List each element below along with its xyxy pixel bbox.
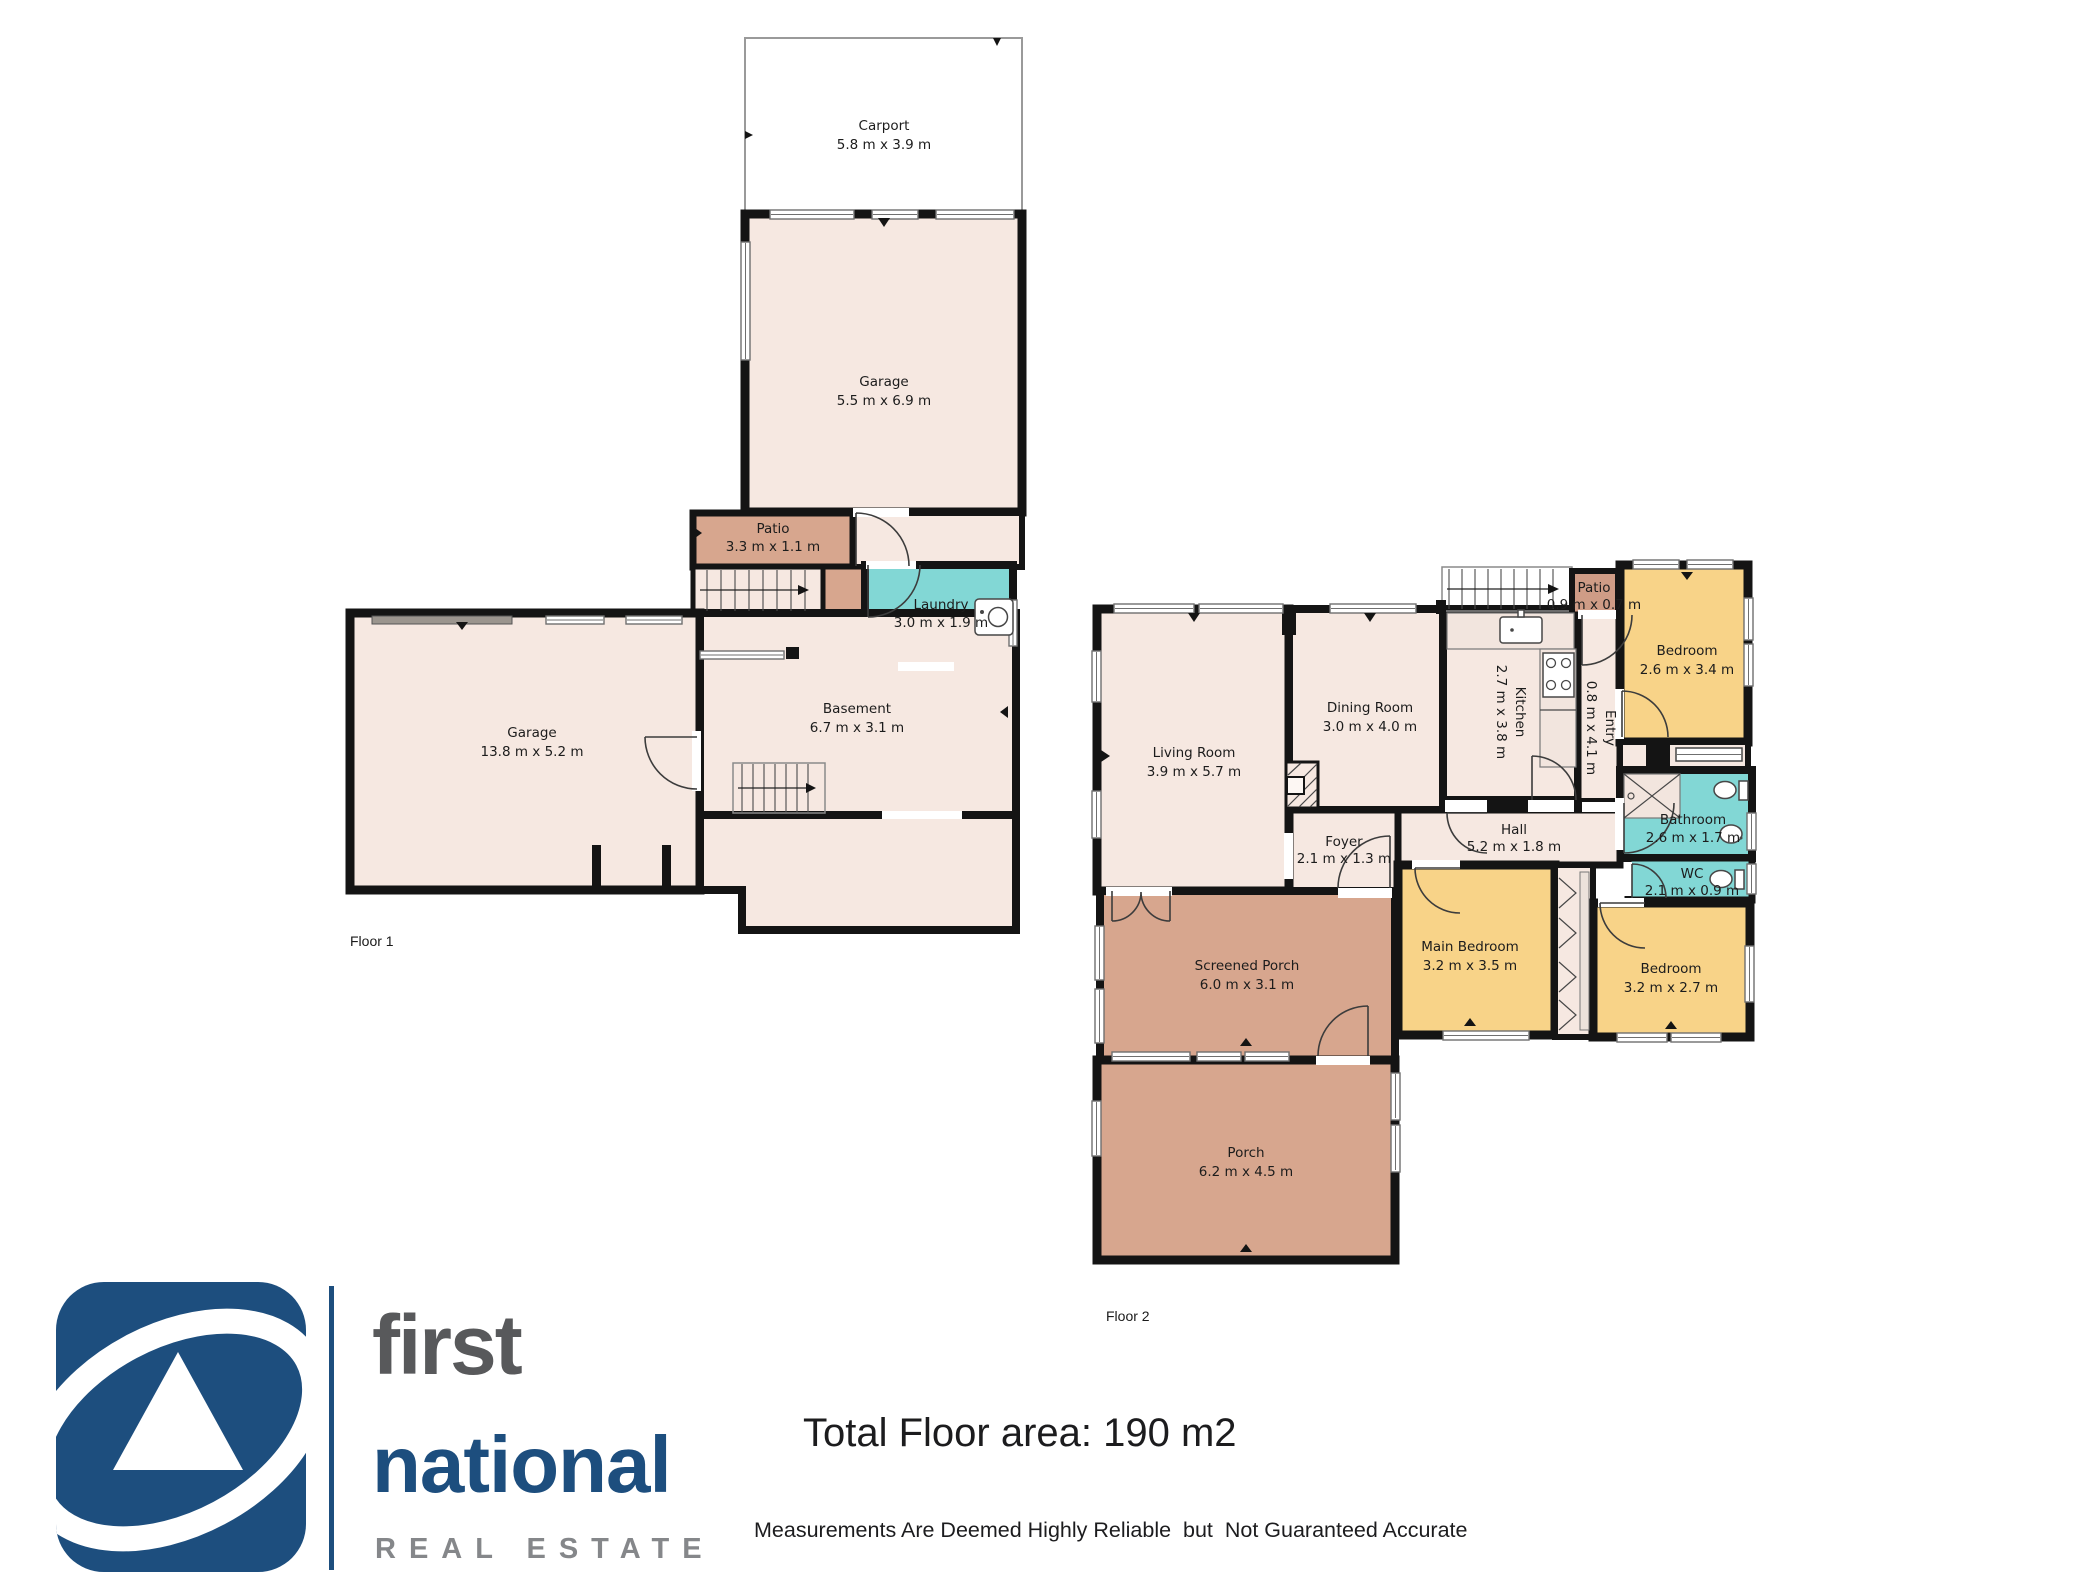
garage-door-strip [372,616,512,624]
room-basement-extension [700,815,1016,930]
logo-word-realestate: REAL ESTATE [375,1533,715,1565]
label-living-dims: 3.9 m x 5.7 m [1147,764,1241,780]
label-bedroom2-name: Bedroom [1640,961,1701,977]
label-patio-f2-name: Patio [1577,580,1610,596]
label-basement-name: Basement [823,701,891,717]
label-hall-name: Hall [1501,822,1527,838]
label-bathroom-dims: 2.6 m x 1.7 m [1646,830,1740,846]
floor2-plan: Living Room 3.9 m x 5.7 m Dining Room 3.… [1092,560,1756,1324]
label-garage-upper-dims: 5.5 m x 6.9 m [837,393,931,409]
label-foyer-name: Foyer [1325,834,1363,850]
label-bedroom1-dims: 2.6 m x 3.4 m [1640,662,1734,678]
label-laundry-dims: 3.0 m x 1.9 m [894,615,988,631]
label-living-name: Living Room [1153,745,1236,761]
brand-logo: first national REAL ESTATE [0,1277,715,1575]
label-floor2: Floor 2 [1106,1308,1150,1324]
room-garage-upper [745,214,1022,512]
label-foyer-dims: 2.1 m x 1.3 m [1297,851,1391,867]
label-patio-f1-name: Patio [756,521,789,537]
label-wc-name: WC [1681,866,1704,882]
stairs-f1-landing [823,567,865,613]
floorplan-canvas: Carport 5.8 m x 3.9 m Garage 5.5 m x 6.9… [0,0,2100,1575]
label-dining-dims: 3.0 m x 4.0 m [1323,719,1417,735]
label-bedroom1-name: Bedroom [1656,643,1717,659]
label-wc-dims: 2.1 m x 0.9 m [1645,883,1739,899]
label-floor1: Floor 1 [350,933,394,949]
disclaimer-text: Measurements Are Deemed Highly Reliable … [754,1518,1467,1542]
label-garage-main-dims: 13.8 m x 5.2 m [481,744,584,760]
label-patio-f2-dims: 0.9 m x 0.7 m [1547,597,1641,613]
logo-word-national: national [372,1420,671,1509]
label-kitchen-dims: 2.7 m x 3.8 m [1493,665,1509,759]
label-carport-dims: 5.8 m x 3.9 m [837,137,931,153]
total-floor-area-text: Total Floor area: 190 m2 [803,1411,1237,1455]
label-bedroom2-dims: 3.2 m x 2.7 m [1624,980,1718,996]
footer: Total Floor area: 190 m2 Measurements Ar… [754,1411,1467,1542]
fireplace-icon [1286,762,1318,808]
label-laundry-name: Laundry [913,597,968,613]
label-garage-upper-name: Garage [859,374,908,390]
label-entry-dims: 0.8 m x 4.1 m [1583,681,1599,775]
label-carport-name: Carport [859,118,910,134]
label-basement-dims: 6.7 m x 3.1 m [810,720,904,736]
label-patio-f1-dims: 3.3 m x 1.1 m [726,539,820,555]
label-bathroom-name: Bathroom [1660,812,1726,828]
label-porch-dims: 6.2 m x 4.5 m [1199,1164,1293,1180]
label-hall-dims: 5.2 m x 1.8 m [1467,839,1561,855]
label-kitchen-name: Kitchen [1512,687,1528,738]
label-screened-porch-dims: 6.0 m x 3.1 m [1200,977,1294,993]
label-dining-name: Dining Room [1327,700,1413,716]
floor1-plan: Carport 5.8 m x 3.9 m Garage 5.5 m x 6.9… [350,38,1022,949]
kitchen-sink-icon [1500,617,1542,643]
label-porch-name: Porch [1227,1145,1264,1161]
room-garage-vestibule [851,513,1022,567]
label-main-bedroom-dims: 3.2 m x 3.5 m [1423,958,1517,974]
label-screened-porch-name: Screened Porch [1195,958,1300,974]
label-main-bedroom-name: Main Bedroom [1421,939,1519,955]
label-garage-main-name: Garage [507,725,556,741]
toilet-icon [1714,782,1736,799]
label-entry-name: Entry [1602,710,1618,746]
logo-word-first: first [372,1298,522,1392]
floorplan-page: Carport 5.8 m x 3.9 m Garage 5.5 m x 6.9… [0,0,2100,1575]
room-screened-porch [1100,891,1395,1060]
logo-divider [329,1286,334,1570]
